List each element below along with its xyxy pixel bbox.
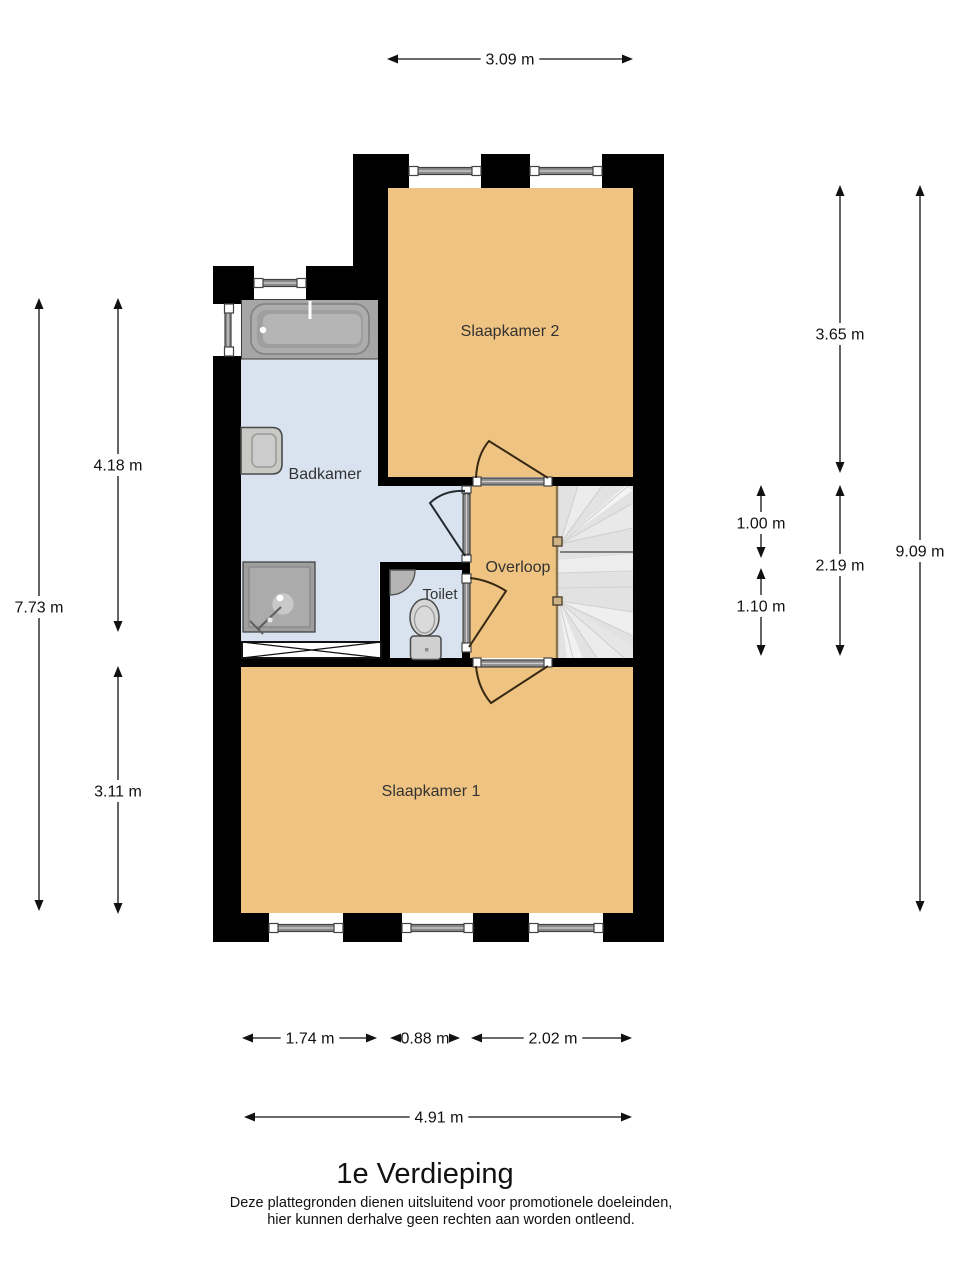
svg-text:4.91 m: 4.91 m [415,1110,464,1127]
svg-text:3.09 m: 3.09 m [486,52,535,69]
svg-text:Badkamer: Badkamer [289,466,363,483]
svg-text:Slaapkamer 1: Slaapkamer 1 [382,783,481,800]
svg-text:1e Verdieping: 1e Verdieping [336,1158,513,1190]
svg-text:4.18 m: 4.18 m [94,458,143,475]
svg-text:1.10 m: 1.10 m [737,599,786,616]
svg-text:3.65 m: 3.65 m [816,327,865,344]
svg-text:1.00 m: 1.00 m [737,516,786,533]
svg-text:Deze plattegronden dienen uits: Deze plattegronden dienen uitsluitend vo… [230,1195,673,1211]
svg-text:Toilet: Toilet [422,586,458,603]
svg-text:3.11 m: 3.11 m [94,784,142,801]
svg-text:1.74 m: 1.74 m [286,1031,335,1048]
svg-text:2.19 m: 2.19 m [816,558,865,575]
svg-text:2.02 m: 2.02 m [529,1031,578,1048]
svg-text:9.09 m: 9.09 m [896,544,945,561]
svg-text:0.88 m: 0.88 m [401,1031,450,1048]
svg-text:Slaapkamer 2: Slaapkamer 2 [461,323,560,340]
svg-text:hier kunnen derhalve geen rech: hier kunnen derhalve geen rechten aan wo… [267,1212,635,1228]
svg-text:Overloop: Overloop [486,559,551,576]
svg-text:7.73 m: 7.73 m [15,600,64,617]
